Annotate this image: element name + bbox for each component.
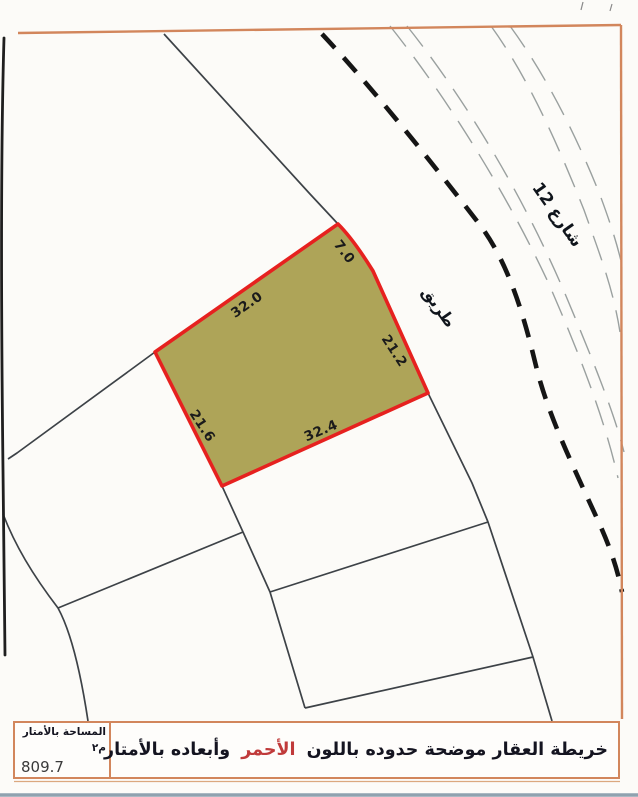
scan-speck <box>610 4 612 11</box>
boundary-line <box>270 522 488 592</box>
map-note-text: خريطة العقار موضحة حدوده باللون الأحمر و… <box>104 740 608 760</box>
street-edge-line <box>491 26 620 332</box>
scan-speck <box>581 2 583 10</box>
area-box: المساحة بالأمتار م٢ 809.7 <box>13 721 111 779</box>
map-drawing <box>0 0 638 797</box>
note-suffix: وأبعاده بالأمتار <box>104 740 230 760</box>
boundary-line <box>222 486 305 708</box>
boundary-line <box>428 393 552 721</box>
boundary-line <box>8 352 155 459</box>
street-edge-lines <box>390 26 624 478</box>
boundary-line <box>305 657 533 708</box>
scan-specks <box>581 2 612 11</box>
note-prefix: خريطة العقار موضحة حدوده باللون <box>307 740 608 760</box>
boundary-line <box>3 514 88 721</box>
frame-right-line <box>621 25 622 719</box>
area-value: 809.7 <box>19 757 106 778</box>
boundary-line <box>164 34 338 224</box>
cadastral-map-page: 7.0 32.0 21.2 21.6 32.4 شارع 12 طريق الم… <box>0 0 638 797</box>
map-note-box: خريطة العقار موضحة حدوده باللون الأحمر و… <box>109 721 620 779</box>
area-label: المساحة بالأمتار م٢ <box>19 725 106 757</box>
scan-edge-left <box>2 38 5 655</box>
street-edge-line <box>390 26 618 478</box>
frame-top-line <box>18 25 621 33</box>
boundary-line <box>58 532 243 608</box>
street-edge-line <box>407 26 624 452</box>
note-red-word: الأحمر <box>241 740 295 760</box>
